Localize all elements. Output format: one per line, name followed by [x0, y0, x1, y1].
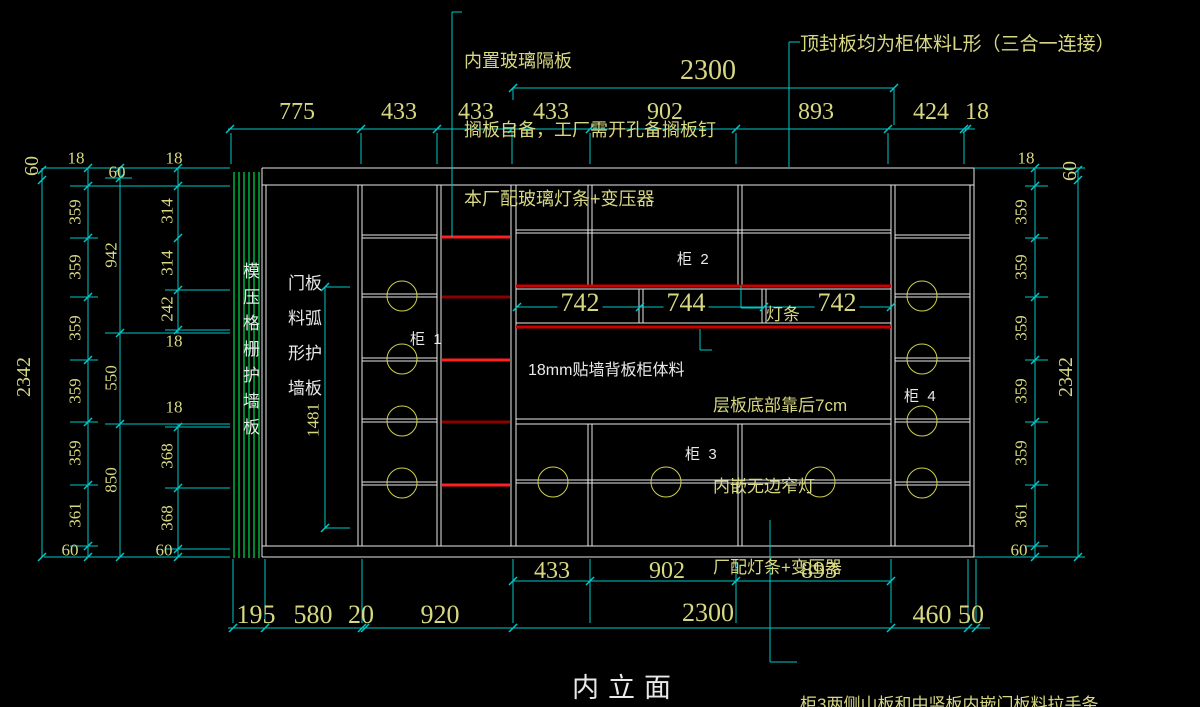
dim-label: 744 — [664, 290, 709, 316]
glass-shelf-annotation: 内置玻璃隔板 搁板自备，工厂需开孔备搁板钉 本厂配玻璃灯条+变压器 — [464, 4, 716, 257]
dim-label: 20 — [348, 602, 374, 628]
cabinet-2-label: 柜 2 — [677, 248, 709, 269]
shelf-hole-circle — [907, 281, 937, 311]
dim-label: 2342 — [14, 357, 34, 397]
dim-label: 850 — [103, 467, 120, 493]
dim-label: 775 — [279, 100, 315, 124]
annotation-line: 内置玻璃隔板 — [464, 50, 716, 73]
dim-label: 314 — [159, 250, 176, 276]
dim-label: 359 — [67, 378, 84, 404]
shelf-hole-circle — [387, 281, 417, 311]
dim-label: 368 — [159, 505, 176, 531]
dim-label: 580 — [294, 602, 333, 628]
dim-label: 359 — [1013, 254, 1030, 280]
dim-label: 18 — [68, 150, 85, 167]
dim-label: 359 — [1013, 440, 1030, 466]
shelf-hole-circle — [907, 344, 937, 374]
dim-label: 550 — [103, 365, 120, 391]
dim-label: 18 — [1018, 150, 1035, 167]
shelf-hole-circle — [907, 406, 937, 436]
dim-label: 433 — [458, 100, 494, 124]
annotation-line: 层板底部靠后7cm — [713, 392, 847, 419]
dim-label: 361 — [1013, 502, 1030, 528]
shelf-hole-circle — [651, 467, 681, 497]
dim-label: 60 — [22, 156, 42, 176]
dim-label: 359 — [67, 254, 84, 280]
dim-label: 433 — [534, 559, 570, 583]
dim-label: 902 — [647, 100, 683, 124]
dim-label: 18 — [166, 150, 183, 167]
light-strip-label: 灯条 — [766, 300, 800, 325]
back-panel-annotation: 18mm贴墙背板柜体料 — [528, 356, 684, 380]
top-seal-annotation: 顶封板均为柜体料L形（三合一连接） — [800, 29, 1115, 56]
dim-label: 893 — [798, 100, 834, 124]
dim-label: 433 — [533, 100, 569, 124]
dim-label: 942 — [103, 242, 120, 268]
dim-label: 314 — [159, 198, 176, 224]
grille-panel-label: 模压格栅护墙板 — [237, 262, 262, 524]
door-panel-label: 门板 料弧 形护 墙板 — [288, 266, 324, 406]
dim-label: 60 — [156, 542, 173, 559]
dim-label: 433 — [381, 100, 417, 124]
dim-label: 359 — [1013, 378, 1030, 404]
dim-label: 424 — [913, 100, 949, 124]
dim-label: 359 — [67, 199, 84, 225]
dim-label: 60 — [109, 164, 126, 181]
shelf-hole-circle — [387, 406, 417, 436]
dim-label: 893 — [801, 559, 837, 583]
dim-label: 60 — [1060, 161, 1080, 181]
shelf-lamp-annotation: 层板底部靠后7cm 内嵌无边窄灯 厂配灯条+变压器 — [713, 338, 847, 635]
dim-label: 359 — [67, 440, 84, 466]
dim-label: 359 — [1013, 315, 1030, 341]
annotation-line: 内嵌无边窄灯 — [713, 473, 847, 500]
shelf-hole-circle — [538, 467, 568, 497]
dim-label: 60 — [62, 542, 79, 559]
door-panel-height-dimension: 1481 — [305, 403, 322, 437]
dim-label: 920 — [421, 602, 460, 628]
annotation-line: 柜3两侧山板和中竖板内嵌门板料拉手条 — [800, 693, 1098, 707]
dim-label: 359 — [67, 315, 84, 341]
dim-label: 18 — [965, 100, 989, 124]
dim-label: 368 — [159, 443, 176, 469]
drawing-title: 内立面 — [572, 666, 680, 705]
dim-label: 742 — [815, 290, 860, 316]
dim-label: 2342 — [1056, 357, 1076, 397]
dim-label: 60 — [1011, 542, 1028, 559]
dim-label: 902 — [649, 559, 685, 583]
dim-label: 50 — [958, 602, 984, 628]
handle-groove-annotation: 柜3两侧山板和中竖板内嵌门板料拉手条 需开拉手槽18*50m — [800, 645, 1098, 707]
cabinet-4-label: 柜 4 — [904, 385, 936, 406]
dim-label: 18 — [166, 333, 183, 350]
shelf-hole-circle — [387, 468, 417, 498]
dim-label: 18 — [166, 399, 183, 416]
cabinet-1-label: 柜 1 — [410, 328, 442, 349]
dim-label: 242 — [159, 296, 176, 322]
cabinet-3-label: 柜 3 — [685, 443, 717, 464]
annotation-line: 本厂配玻璃灯条+变压器 — [464, 188, 716, 211]
dim-label: 742 — [558, 290, 603, 316]
dim-label: 2300 — [682, 600, 734, 626]
cad-canvas: 内置玻璃隔板 搁板自备，工厂需开孔备搁板钉 本厂配玻璃灯条+变压器 顶封板均为柜… — [0, 0, 1200, 707]
top-overall-dimension: 2300 — [680, 57, 736, 85]
dim-label: 460 — [913, 602, 952, 628]
shelf-hole-circle — [907, 468, 937, 498]
dim-label: 361 — [67, 502, 84, 528]
dim-label: 195 — [237, 602, 276, 628]
dim-label: 359 — [1013, 199, 1030, 225]
